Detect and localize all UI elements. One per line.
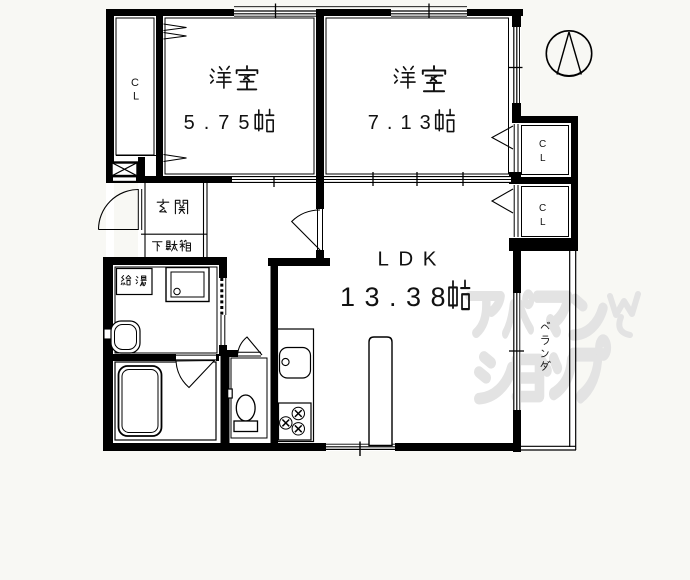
svg-text:L: L xyxy=(133,91,139,103)
svg-text:7.13: 7.13 xyxy=(368,112,439,134)
svg-text:L: L xyxy=(540,217,546,228)
svg-text:L: L xyxy=(540,153,546,164)
svg-text:C: C xyxy=(539,203,546,214)
svg-text:5.75: 5.75 xyxy=(184,112,259,134)
svg-text:C: C xyxy=(539,139,546,150)
svg-text:C: C xyxy=(131,77,139,89)
svg-text:LDK: LDK xyxy=(378,248,446,271)
svg-text:13.38: 13.38 xyxy=(340,282,455,312)
